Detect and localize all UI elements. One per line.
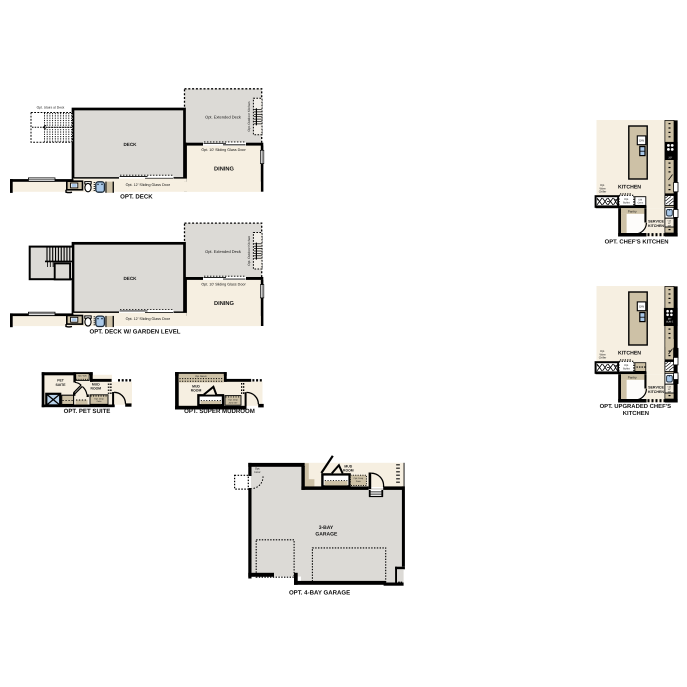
svg-text:KITCHEN: KITCHEN [648, 224, 664, 228]
svg-text:SUB-Z: SUB-Z [666, 321, 674, 324]
svg-text:SERVICE: SERVICE [648, 219, 664, 223]
svg-text:Opt. Drop: Opt. Drop [228, 398, 238, 401]
svg-text:OPT. DECK W/ GARDEN LEVEL: OPT. DECK W/ GARDEN LEVEL [89, 329, 180, 336]
svg-text:Opt: Opt [668, 219, 672, 222]
svg-text:Opt. W/D: Opt. W/D [78, 375, 87, 378]
svg-text:OPT. PET SUITE: OPT. PET SUITE [64, 408, 111, 415]
svg-text:30": 30" [668, 156, 672, 159]
svg-text:Zone 36": Zone 36" [229, 401, 238, 404]
svg-text:GARAGE: GARAGE [315, 531, 338, 537]
svg-text:3-BAY: 3-BAY [319, 525, 334, 531]
svg-text:KITCHEN: KITCHEN [623, 410, 649, 417]
svg-text:Pantry: Pantry [628, 210, 637, 214]
svg-text:Chiller: Chiller [599, 191, 607, 194]
svg-text:DW: DW [639, 139, 644, 143]
svg-text:Zone: Zone [97, 400, 103, 403]
svg-text:OPT. CHEF'S KITCHEN: OPT. CHEF'S KITCHEN [605, 238, 669, 245]
svg-text:SUITE: SUITE [56, 383, 67, 387]
svg-text:Opt. Drop: Opt. Drop [354, 477, 364, 480]
svg-text:OPT. UPGRADED CHEF'S: OPT. UPGRADED CHEF'S [600, 403, 672, 410]
svg-text:Oven: Oven [637, 201, 643, 204]
svg-text:Opt. Drop: Opt. Drop [94, 397, 104, 400]
svg-text:30": 30" [668, 222, 671, 225]
svg-text:Door: Door [254, 470, 260, 474]
svg-text:Opt. Bench: Opt. Bench [195, 375, 207, 378]
svg-text:ROOM: ROOM [343, 469, 354, 473]
svg-text:KITCHEN: KITCHEN [618, 184, 641, 190]
svg-text:OPT. 4-BAY GARAGE: OPT. 4-BAY GARAGE [289, 589, 350, 596]
svg-text:ROOM: ROOM [191, 389, 202, 393]
svg-text:S/R: S/R [668, 225, 672, 228]
svg-text:ROOM: ROOM [91, 387, 102, 391]
svg-text:Buffet: Buffet [623, 201, 630, 204]
svg-text:Opt. Stairs at Deck: Opt. Stairs at Deck [37, 105, 65, 109]
svg-text:OPT. DECK: OPT. DECK [120, 194, 153, 201]
svg-text:Zone: Zone [356, 480, 362, 483]
svg-text:OPT. SUPER MUDROOM: OPT. SUPER MUDROOM [184, 408, 255, 415]
